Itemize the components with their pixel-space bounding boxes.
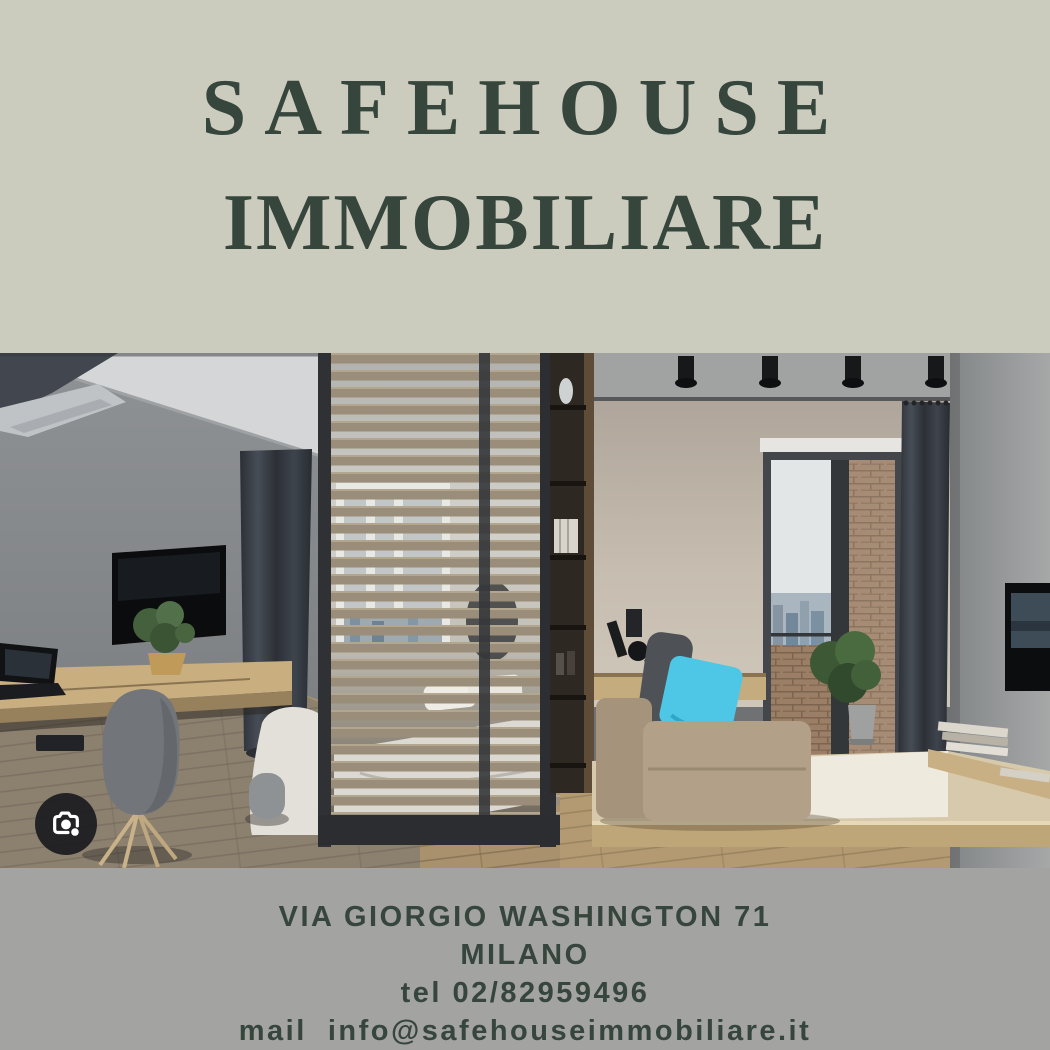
shelf-unit <box>550 353 594 793</box>
apartment-photo-illustration <box>0 353 1050 868</box>
flyer: SAFEHOUSE IMMOBILIARE <box>0 0 1050 1050</box>
header-band: SAFEHOUSE IMMOBILIARE <box>0 0 1050 353</box>
curtain-right <box>895 401 950 795</box>
contact-block: VIA GIORGIO WASHINGTON 71 MILANO tel 02/… <box>0 868 1050 1050</box>
google-lens-button[interactable] <box>35 793 97 855</box>
brand-title-line1: SAFEHOUSE <box>0 68 1050 148</box>
contact-email: mail info@safehouseimmobiliare.it <box>239 1012 812 1050</box>
brand-title-line2: IMMOBILIARE <box>0 183 1050 263</box>
apartment-photo <box>0 353 1050 868</box>
contact-phone: tel 02/82959496 <box>401 974 650 1012</box>
contact-city: MILANO <box>460 936 589 974</box>
google-lens-camera-icon <box>49 807 83 841</box>
pouf <box>245 773 289 826</box>
contact-address: VIA GIORGIO WASHINGTON 71 <box>279 898 772 936</box>
wall-outlets <box>36 735 84 751</box>
slat-partition <box>318 353 560 847</box>
daybed-seat <box>643 721 811 821</box>
tv-right <box>1005 583 1050 691</box>
